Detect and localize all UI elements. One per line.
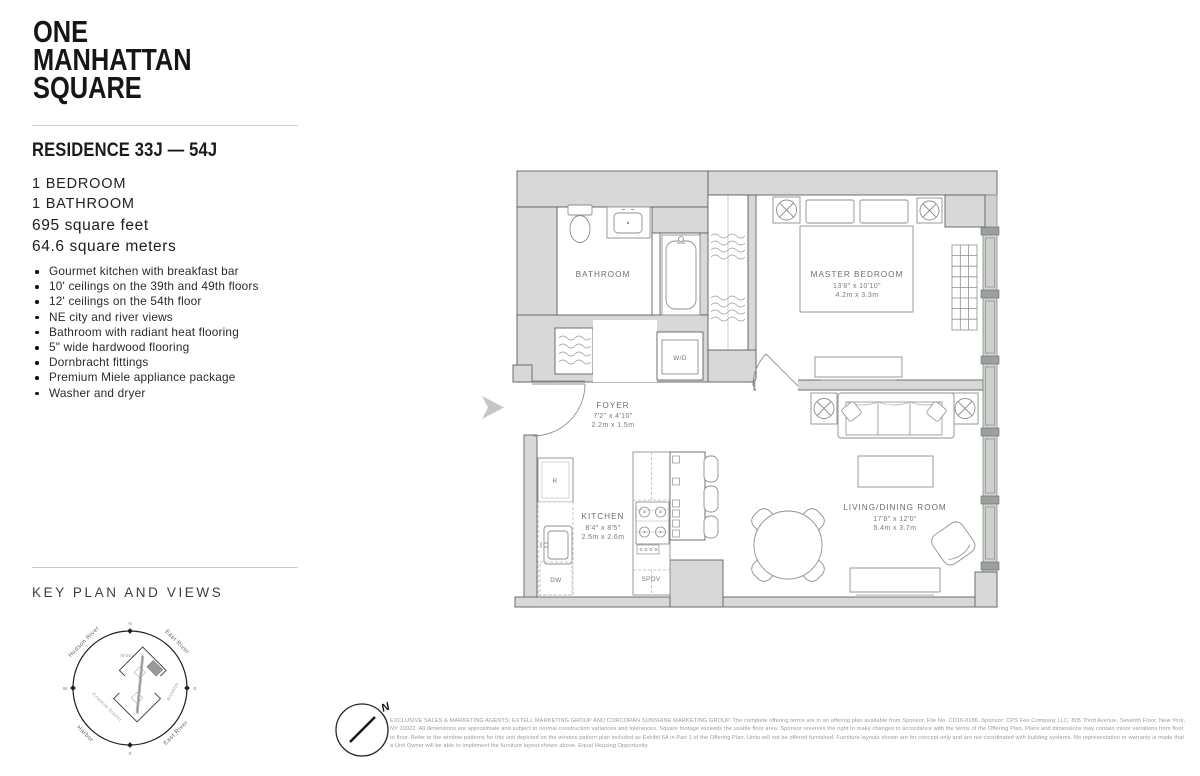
armchair-icon [929, 519, 979, 568]
divider [32, 567, 298, 568]
east-river-bottom-label: East River [163, 720, 190, 747]
feature-item: 5" wide hardwood flooring [32, 340, 312, 355]
bathroom-label: BATHROOM [576, 270, 631, 279]
east-river-top-label: East River [163, 629, 190, 656]
refrigerator-icon: R [538, 458, 573, 502]
master-bedroom-label: MASTER BEDROOM [811, 270, 904, 279]
kitchen-dim-m: 2.5m x 2.6m [582, 534, 625, 541]
feature-item: Dornbracht fittings [32, 355, 312, 370]
refrigerator-label: R [552, 478, 557, 485]
dining-table-icon [748, 505, 827, 584]
ceiling-fixture-icon [952, 393, 978, 424]
dresser-icon [952, 245, 977, 330]
feature-item: Bathroom with radiant heat flooring [32, 325, 312, 340]
legal-disclaimer: EXCLUSIVE SALES & MARKETING AGENTS: EXTE… [390, 717, 1186, 750]
kitchen-dim-ft: 8'4" x 8'5" [585, 525, 620, 532]
bedroom-count: 1 BEDROOM [32, 174, 135, 194]
feature-item: Gourmet kitchen with breakfast bar [32, 264, 312, 279]
coffee-table-icon [858, 456, 933, 487]
feature-item: NE city and river views [32, 310, 312, 325]
configuration: 1 BEDROOM 1 BATHROOM [32, 174, 135, 214]
washer-dryer-label: W/D [673, 355, 687, 362]
south-label: S [128, 751, 131, 756]
living-dining-label: LIVING/DINING ROOM [843, 503, 947, 512]
bench-icon [815, 357, 902, 380]
brand-logo: ONE MANHATTAN SQUARE [33, 18, 192, 102]
north-marker [127, 628, 133, 634]
area-square-feet: 695 square feet [32, 215, 176, 236]
master-bedroom-dim-m: 4.2m x 3.3m [836, 292, 879, 299]
breakfast-bar [670, 452, 705, 540]
ceiling-fixture-icon [773, 197, 800, 223]
area-square-meters: 64.6 square meters [32, 236, 176, 257]
bar-stools [704, 456, 718, 538]
entry-arrow-icon [482, 396, 504, 419]
kitchen-sink-icon [541, 526, 572, 564]
brand-line-3: SQUARE [33, 74, 192, 102]
bathtub-icon [662, 235, 700, 315]
bathroom-vanity-icon [607, 207, 650, 238]
south-marker [127, 742, 133, 748]
ceiling-fixture-icon [811, 393, 837, 424]
divider [32, 125, 298, 126]
entry-door [532, 381, 585, 436]
east-marker [184, 685, 190, 691]
residence-title: RESIDENCE 33J — 54J [32, 140, 217, 162]
foyer-label: FOYER [596, 401, 629, 410]
west-marker [70, 685, 76, 691]
ceiling-fixture-icon [917, 198, 942, 223]
feature-item: 12' ceilings on the 54th floor [32, 294, 312, 309]
key-plan-heading: KEY PLAN AND VIEWS [32, 585, 223, 600]
corner-column [945, 195, 985, 227]
sofa-icon [838, 393, 954, 438]
living-dining-dim-ft: 17'8" x 12'0" [873, 516, 917, 523]
east-label: E [193, 686, 196, 691]
speed-oven-label: SPOV [641, 576, 661, 583]
living-dining-dim-m: 5.4m x 3.7m [874, 525, 917, 532]
brooklyn-label: Brooklyn [166, 681, 180, 701]
dishwasher-label: DW [550, 577, 562, 584]
foyer-dim-m: 2.2m x 1.5m [592, 422, 635, 429]
bathroom-count: 1 BATHROOM [32, 194, 135, 214]
feature-item: Washer and dryer [32, 386, 312, 401]
floor-plan: BATHROOM W/D [480, 150, 1020, 620]
kitchen-label: KITCHEN [582, 512, 625, 521]
window-wall [981, 195, 999, 607]
washer-dryer-icon: W/D [662, 340, 698, 374]
unit-area: 695 square feet 64.6 square meters [32, 215, 176, 257]
foyer-dim-ft: 7'2" x 4'10" [593, 413, 632, 420]
north-label: N [128, 621, 131, 626]
credenza-icon [850, 568, 940, 595]
corner-column [975, 572, 997, 607]
toilet-icon [568, 205, 592, 243]
compass-needle [350, 717, 375, 742]
west-label: W [63, 686, 68, 691]
feature-list: Gourmet kitchen with breakfast bar 10' c… [32, 264, 312, 401]
harbor-label: Harbor [75, 725, 94, 744]
feature-item: 10' ceilings on the 39th and 49th floors [32, 279, 312, 294]
feature-item: Premium Miele appliance package [32, 370, 312, 385]
master-bedroom-dim-ft: 13'8" x 10'10" [833, 283, 881, 290]
key-plan-diagram: N E S W Hudson River East River Harbor E… [30, 602, 240, 774]
